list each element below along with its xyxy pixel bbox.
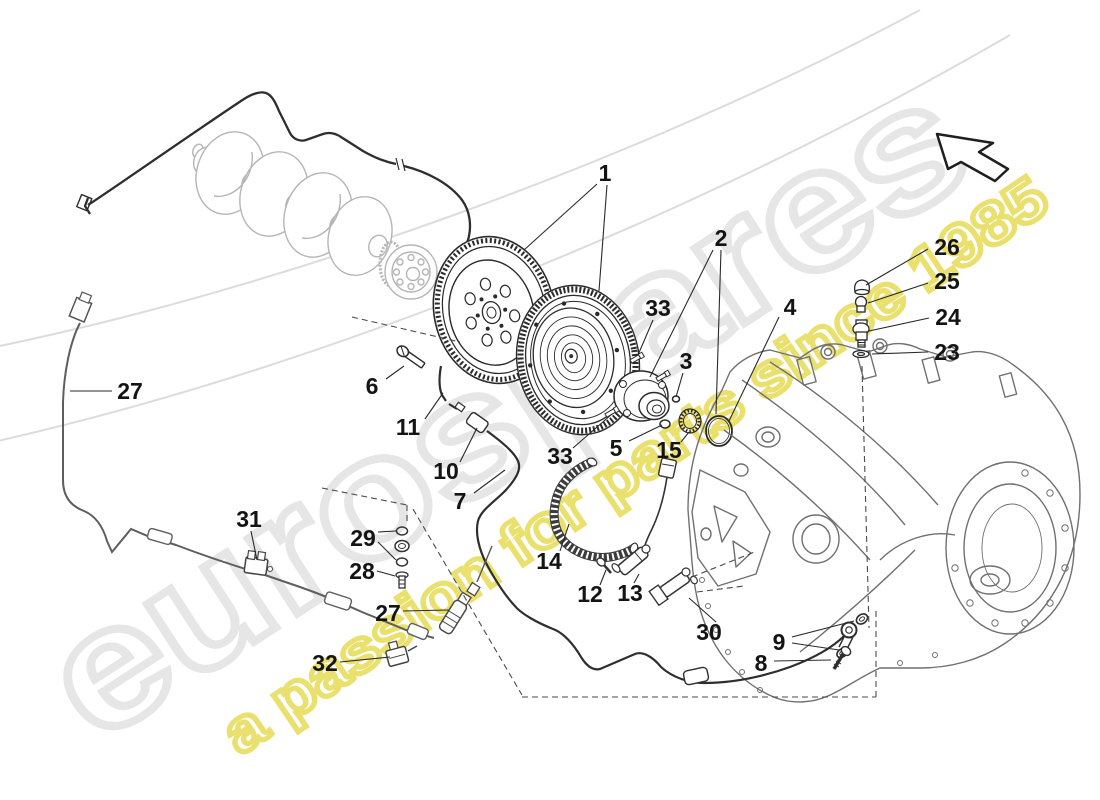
callout-label-4-4[interactable]: 4 [784, 294, 797, 320]
callout-label-14-12[interactable]: 14 [536, 548, 562, 574]
callout-label-6-5[interactable]: 6 [366, 373, 379, 399]
callout-label-33-9[interactable]: 33 [547, 443, 573, 469]
callout-label-8-17[interactable]: 8 [755, 650, 768, 676]
callout-label-26-21[interactable]: 26 [934, 234, 960, 260]
callout-label-25-20[interactable]: 25 [934, 268, 960, 294]
watermark-brand-text: eurospares [12, 42, 1000, 776]
callout-label-32-27[interactable]: 32 [312, 650, 338, 676]
callout-label-29-24[interactable]: 29 [350, 525, 376, 551]
callout-label-9-16[interactable]: 9 [773, 629, 786, 655]
parts-diagram-page: eurospares a passion for parts since 198… [0, 0, 1100, 800]
callout-label-28-25[interactable]: 28 [349, 558, 375, 584]
callout-label-30-15[interactable]: 30 [696, 619, 722, 645]
callout-label-33-2[interactable]: 33 [645, 295, 671, 321]
callout-label-10-7[interactable]: 10 [433, 458, 459, 484]
callout-label-15-11[interactable]: 15 [656, 437, 682, 463]
callout-label-2-1[interactable]: 2 [715, 225, 728, 251]
callout-8-leader [774, 660, 831, 661]
callout-label-31-23[interactable]: 31 [236, 506, 262, 532]
callout-label-1-0[interactable]: 1 [599, 160, 612, 186]
callout-label-27-26[interactable]: 27 [375, 600, 401, 626]
callout-label-27-22[interactable]: 27 [117, 378, 143, 404]
callout-label-13-14[interactable]: 13 [617, 580, 643, 606]
callout-label-11-6[interactable]: 11 [396, 414, 421, 440]
callout-label-24-19[interactable]: 24 [935, 304, 961, 330]
crankshaft-drawing [186, 123, 437, 299]
callout-1-leader [524, 184, 597, 250]
callout-label-5-10[interactable]: 5 [610, 435, 623, 461]
callout-label-7-8[interactable]: 7 [454, 488, 467, 514]
callout-label-3-3[interactable]: 3 [680, 348, 693, 374]
callout-label-23-18[interactable]: 23 [934, 339, 960, 365]
parts-diagram-canvas: eurospares a passion for parts since 198… [0, 0, 1100, 800]
callout-label-12-13[interactable]: 12 [577, 581, 603, 607]
